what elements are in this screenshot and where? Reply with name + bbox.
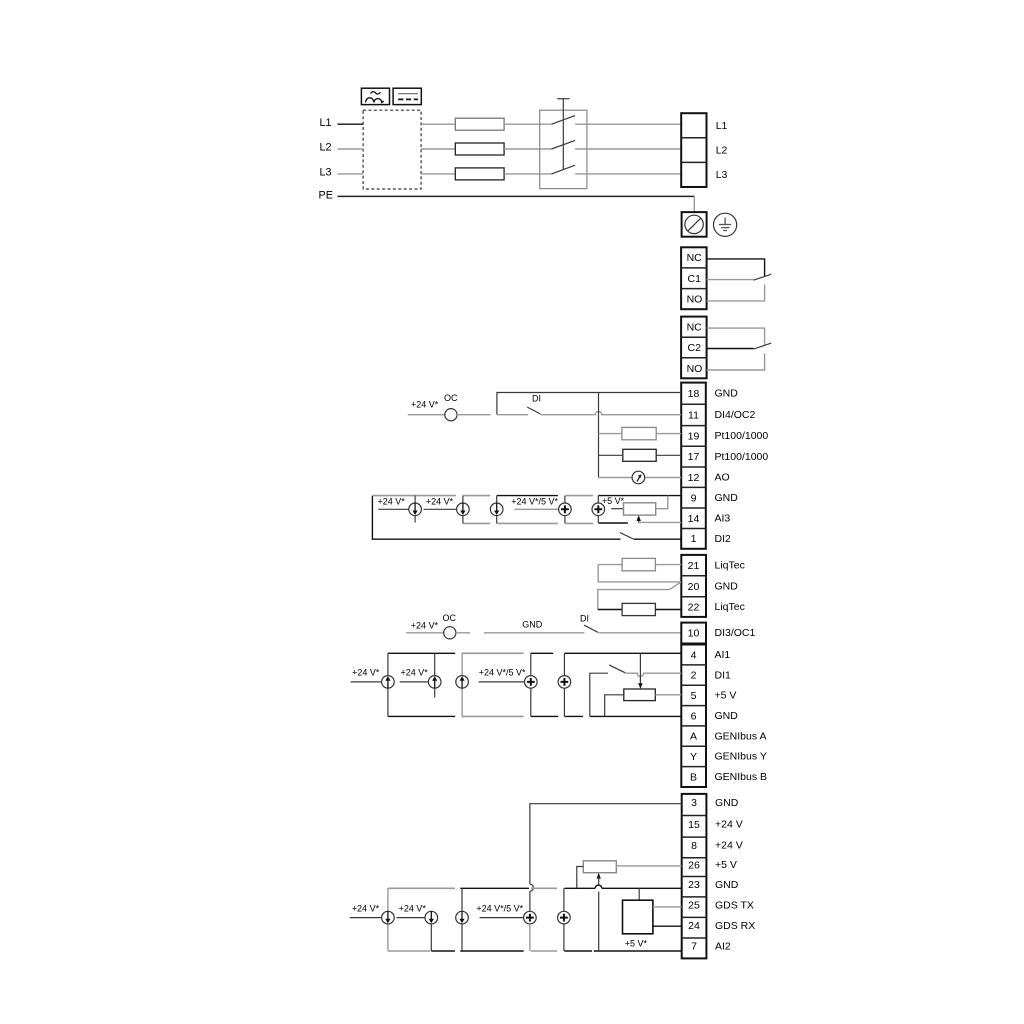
svg-text:4: 4 [691,649,697,661]
svg-text:18: 18 [688,388,700,400]
svg-text:25: 25 [688,900,700,912]
svg-text:GND: GND [715,388,739,400]
svg-text:AI2: AI2 [715,940,731,952]
svg-text:DI3/OC1: DI3/OC1 [715,627,756,639]
svg-text:NC: NC [687,322,703,334]
svg-text:19: 19 [688,431,700,443]
svg-text:+24 V*: +24 V* [411,400,439,410]
svg-text:L2: L2 [716,145,728,157]
svg-text:DI: DI [532,394,541,404]
svg-text:9: 9 [691,492,697,504]
svg-text:12: 12 [688,472,700,484]
svg-text:GDS RX: GDS RX [715,920,755,932]
svg-text:+24 V*: +24 V* [411,620,439,630]
svg-text:3: 3 [691,797,697,809]
svg-text:GND: GND [715,492,739,504]
svg-text:L1: L1 [716,120,728,132]
svg-text:11: 11 [688,410,699,422]
svg-text:AI1: AI1 [715,649,731,661]
svg-text:+5 V*: +5 V* [602,496,625,506]
svg-text:GND: GND [715,879,739,891]
svg-text:+24 V*: +24 V* [378,497,406,507]
svg-text:8: 8 [691,840,697,852]
svg-text:LiqTec: LiqTec [715,601,745,613]
svg-text:DI2: DI2 [715,533,732,545]
svg-text:23: 23 [688,879,700,891]
svg-text:24: 24 [688,920,700,932]
svg-text:+24 V: +24 V [715,840,743,852]
svg-text:+24 V: +24 V [715,818,743,830]
svg-text:10: 10 [688,628,700,640]
svg-text:7: 7 [691,941,697,953]
svg-text:+24 V*/5 V*: +24 V*/5 V* [476,904,523,914]
svg-text:LiqTec: LiqTec [715,560,745,572]
svg-text:L2: L2 [320,142,332,154]
svg-text:A: A [690,731,697,743]
svg-text:DI: DI [580,614,589,624]
svg-text:2: 2 [691,670,697,682]
svg-text:+5 V: +5 V [715,859,737,871]
svg-text:GND: GND [715,581,739,593]
svg-text:5: 5 [691,690,697,702]
svg-text:GENIbus B: GENIbus B [715,771,768,783]
svg-text:+24 V*: +24 V* [352,904,380,914]
svg-text:+24 V*: +24 V* [352,668,380,678]
svg-text:+24 V*/5 V*: +24 V*/5 V* [479,668,526,678]
svg-text:26: 26 [688,860,700,872]
svg-text:17: 17 [688,451,700,463]
svg-text:20: 20 [688,581,700,593]
svg-text:NO: NO [687,294,703,306]
svg-text:L3: L3 [716,169,728,181]
svg-text:14: 14 [688,513,700,525]
svg-text:+5 V*: +5 V* [625,938,648,948]
svg-text:Pt100/1000: Pt100/1000 [715,451,769,463]
svg-text:22: 22 [688,601,700,613]
svg-text:+5 V: +5 V [715,690,737,702]
svg-text:C2: C2 [688,342,702,354]
svg-text:GND: GND [715,797,739,809]
svg-text:GND: GND [522,619,543,629]
svg-text:6: 6 [691,710,697,722]
svg-text:1: 1 [691,533,697,545]
svg-text:NC: NC [687,252,703,264]
svg-text:DI1: DI1 [715,669,732,681]
svg-text:GDS TX: GDS TX [715,899,754,911]
svg-text:AI3: AI3 [715,512,731,524]
svg-text:Y: Y [690,751,697,763]
svg-text:+24 V*/5 V*: +24 V*/5 V* [511,497,558,507]
svg-text:GENIbus A: GENIbus A [715,730,767,742]
svg-text:15: 15 [688,819,700,831]
svg-text:PE: PE [319,189,333,201]
svg-text:AO: AO [715,471,730,483]
svg-text:Pt100/1000: Pt100/1000 [715,430,769,442]
svg-text:B: B [690,771,697,783]
svg-text:OC: OC [443,613,457,623]
svg-text:GND: GND [715,710,739,722]
svg-text:L1: L1 [320,117,332,129]
svg-text:21: 21 [688,560,700,572]
svg-text:GENIbus Y: GENIbus Y [715,751,767,763]
svg-text:+24 V*: +24 V* [399,904,427,914]
svg-text:+24 V*: +24 V* [426,497,454,507]
svg-text:NO: NO [687,363,703,375]
svg-text:L3: L3 [320,167,332,179]
svg-text:DI4/OC2: DI4/OC2 [715,409,756,421]
svg-text:+24 V*: +24 V* [401,668,429,678]
svg-text:C1: C1 [688,273,702,285]
svg-text:OC: OC [444,393,458,403]
